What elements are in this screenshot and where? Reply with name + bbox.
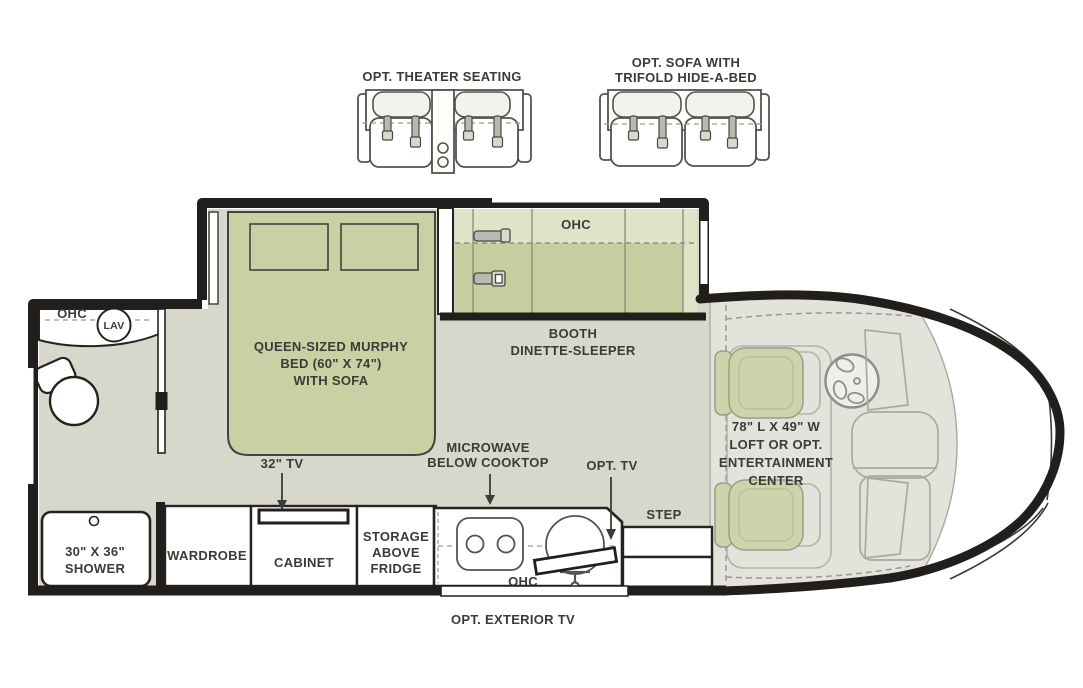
exterior-tv-label: OPT. EXTERIOR TV [451,612,575,627]
booth-label-line2: DINETTE-SLEEPER [510,343,635,358]
wardrobe-label: WARDROBE [167,548,247,563]
bed-pillow-right [341,224,418,270]
booth-label-line1: BOOTH [549,326,597,341]
murphy-bed-label-line1: QUEEN-SIZED MURPHY [254,339,408,354]
murphy-bed-label-line2: BED (60" X 74") [280,356,381,371]
opt-theater-seating: OPT. THEATER SEATING [358,69,531,173]
sofa-cushion-left [611,118,682,166]
theater-console [432,90,454,173]
storage-label-line3: FRIDGE [371,561,422,576]
booth-end-cap [683,209,697,313]
tv-32 [259,510,348,523]
storage-label-line2: ABOVE [372,545,420,560]
theater-cushion-left [370,118,432,167]
slideout-wall-strip [209,212,218,304]
partition-wall [156,502,165,590]
step-label: STEP [646,507,681,522]
tv-32-label: 32" TV [261,456,304,471]
bathroom-door [158,309,165,453]
microwave-label-line1: MICROWAVE [446,440,529,455]
opt-sofa-hide-a-bed: OPT. SOFA WITH TRIFOLD HIDE-A-BED [600,55,769,166]
sofa-label-line2: TRIFOLD HIDE-A-BED [615,70,757,85]
sofa-label-line1: OPT. SOFA WITH [632,55,740,70]
opt-tv-label: OPT. TV [586,458,637,473]
booth-ohc-label: OHC [561,217,591,232]
loft-label-line4: CENTER [748,473,804,488]
theater-backrest-left [373,92,430,117]
door-wall-segment [156,392,168,410]
shower-label-line2: SHOWER [65,561,126,576]
wardrobe [165,506,251,586]
loft-label-line3: ENTERTAINMENT [719,455,833,470]
toilet [50,377,98,425]
murphy-bed-slideout: QUEEN-SIZED MURPHY BED (60" X 74") WITH … [209,212,435,455]
loft-label-line1: 78" L X 49" W [732,419,821,434]
entry-step-upper [623,527,712,557]
exterior-tv-marker [441,586,628,596]
window-top [492,197,660,203]
cabinet-label: CABINET [274,555,334,570]
window-booth-side [701,221,708,284]
storage-label-line1: STORAGE [363,529,429,544]
window-left [28,368,34,484]
shower-drain-icon [90,517,99,526]
loft-label-line2: LOFT OR OPT. [729,437,822,452]
steering-wheel-icon [826,355,879,408]
shower-label-line1: 30" X 36" [65,544,125,559]
sofa-backrest-right [686,92,754,117]
bed-pillow-left [250,224,328,270]
sofa-cushion-right [685,118,756,166]
theater-backrest-right [455,92,510,117]
lav-label: LAV [103,320,124,332]
theater-seating-label: OPT. THEATER SEATING [362,69,521,84]
microwave-label-line2: BELOW COOKTOP [427,455,548,470]
rv-floorplan-diagram: OPT. THEATER SEATING OPT. SOFA WITH TRIF… [0,0,1083,688]
slideout-divider-wall [438,208,453,314]
murphy-bed-label-line3: WITH SOFA [294,373,369,388]
sofa-backrest-left [613,92,681,117]
